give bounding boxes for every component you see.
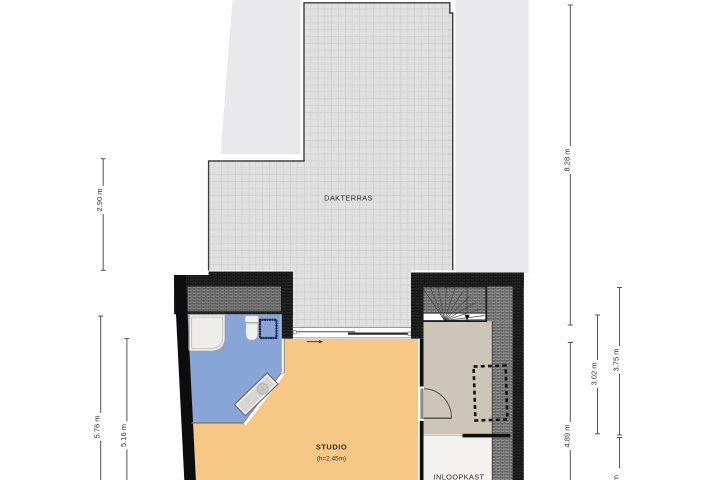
svg-text:8.28 m: 8.28 m [562,149,571,172]
svg-text:5.16 m: 5.16 m [119,424,128,447]
svg-text:2.90 m: 2.90 m [95,189,104,212]
svg-text:3.02 m: 3.02 m [589,363,598,386]
svg-text:2.06 m: 2.06 m [611,475,620,480]
svg-text:5.76 m: 5.76 m [93,416,102,439]
svg-text:STUDIO: STUDIO [316,442,347,451]
svg-text:3.75 m: 3.75 m [611,349,620,372]
svg-text:(h=2.45m): (h=2.45m) [317,455,346,462]
svg-text:INLOOPKAST: INLOOPKAST [434,473,485,480]
svg-text:DAKTERRAS: DAKTERRAS [324,194,373,203]
svg-text:4.89 m: 4.89 m [562,425,571,448]
